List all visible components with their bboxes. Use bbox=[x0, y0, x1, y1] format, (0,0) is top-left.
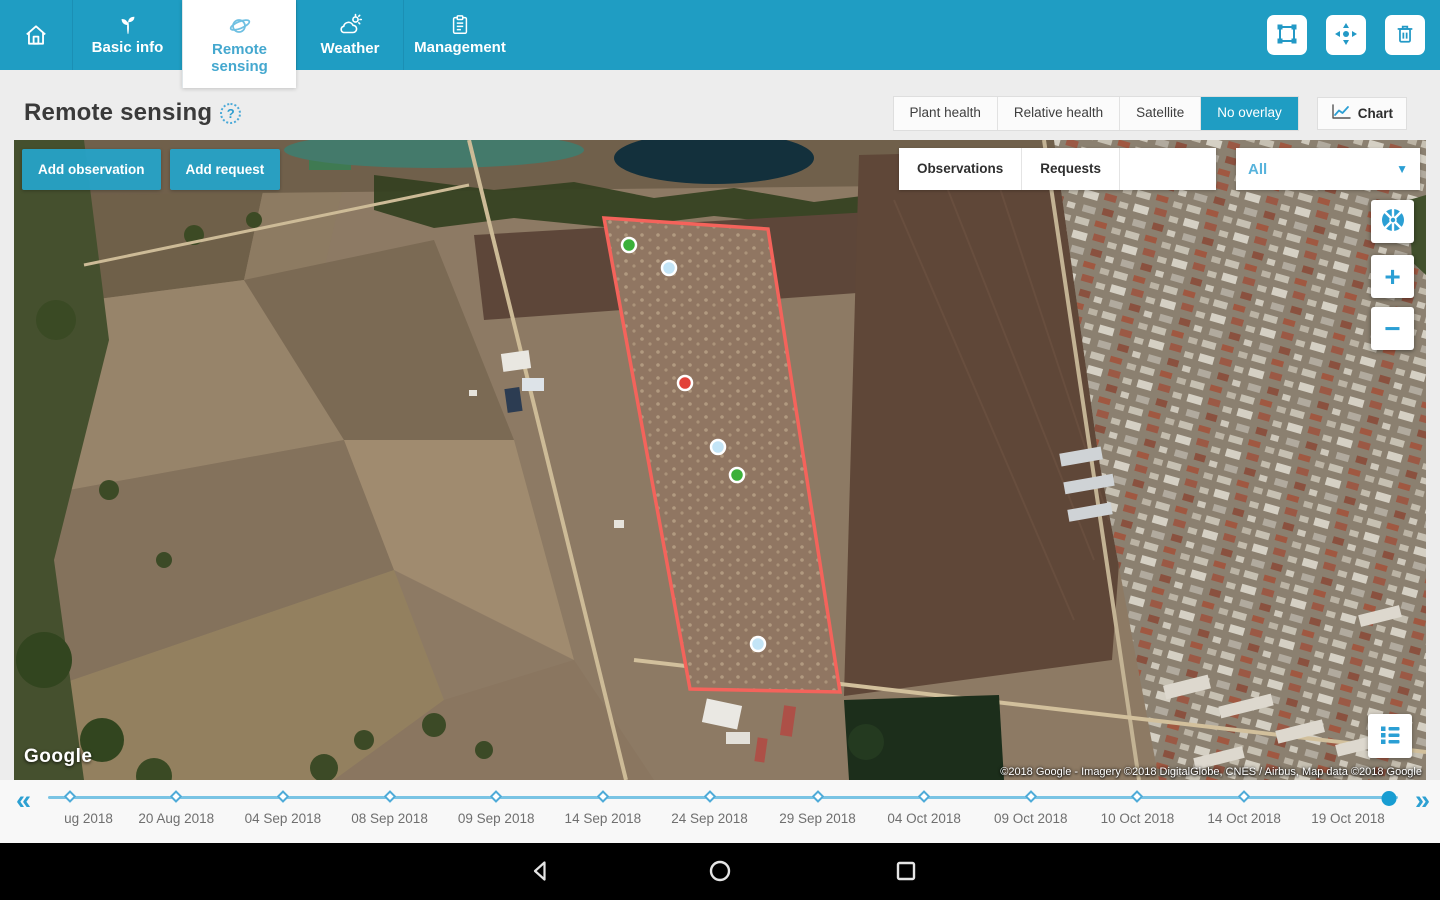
tab-basic-info[interactable]: Basic info bbox=[72, 0, 182, 70]
map-filter-controls: Observations Requests All All ▼ bbox=[899, 148, 1420, 190]
observation-red-marker[interactable] bbox=[678, 376, 692, 390]
satellite-icon bbox=[228, 14, 252, 38]
back-icon[interactable] bbox=[527, 858, 553, 887]
timeline-date-marker[interactable] bbox=[918, 790, 931, 803]
overlay-segment: Plant health Relative health Satellite N… bbox=[893, 96, 1299, 131]
top-navigation-bar: Basic info Remote sensing Weather bbox=[0, 0, 1440, 70]
timeline-date-label: 09 Sep 2018 bbox=[458, 811, 535, 826]
plus-icon: + bbox=[1384, 263, 1400, 291]
weather-cloud-icon bbox=[337, 13, 363, 37]
tab-management[interactable]: Management bbox=[403, 0, 516, 70]
tab-label: Weather bbox=[321, 40, 380, 57]
filter-all[interactable]: All bbox=[1120, 148, 1216, 190]
observation-blue-marker[interactable] bbox=[711, 440, 725, 454]
timeline-date-label: 09 Oct 2018 bbox=[994, 811, 1068, 826]
clipboard-icon bbox=[449, 14, 471, 36]
timeline-date-marker[interactable] bbox=[1238, 790, 1251, 803]
overlay-option-plant-health[interactable]: Plant health bbox=[894, 97, 998, 130]
observation-blue-marker[interactable] bbox=[751, 637, 765, 651]
header-actions bbox=[1267, 0, 1440, 70]
map-action-buttons: Add observation Add request bbox=[22, 149, 280, 190]
tab-remote-sensing[interactable]: Remote sensing bbox=[182, 0, 296, 88]
timeline-date-marker[interactable] bbox=[703, 790, 716, 803]
timeline-date-marker[interactable] bbox=[1131, 790, 1144, 803]
zoom-out-button[interactable]: − bbox=[1371, 307, 1414, 350]
tab-home[interactable] bbox=[0, 0, 72, 70]
tab-weather[interactable]: Weather bbox=[296, 0, 403, 70]
timeline-date-label: 14 Sep 2018 bbox=[565, 811, 642, 826]
locate-field-button[interactable] bbox=[1371, 200, 1414, 243]
trash-icon bbox=[1394, 23, 1416, 48]
help-icon[interactable]: ? bbox=[220, 103, 241, 124]
timeline-slider[interactable]: ug 201820 Aug 201804 Sep 201808 Sep 2018… bbox=[48, 780, 1398, 843]
minus-icon: − bbox=[1384, 315, 1400, 343]
app-window: Basic info Remote sensing Weather bbox=[0, 0, 1440, 900]
chart-button[interactable]: Chart bbox=[1317, 97, 1407, 130]
chart-button-label: Chart bbox=[1358, 106, 1393, 121]
timeline-date-marker[interactable] bbox=[383, 790, 396, 803]
android-navigation-bar bbox=[0, 843, 1440, 900]
edit-boundary-icon bbox=[1275, 22, 1299, 49]
timeline-selected-date-marker[interactable] bbox=[1381, 791, 1396, 806]
recents-square-icon[interactable] bbox=[893, 858, 919, 887]
timeline-date-label: 24 Sep 2018 bbox=[671, 811, 748, 826]
locate-aperture-icon bbox=[1380, 207, 1406, 236]
tab-label: Management bbox=[414, 39, 506, 56]
legend-list-icon bbox=[1378, 723, 1402, 750]
chevron-down-icon: ▼ bbox=[1396, 162, 1408, 176]
timeline-date-marker[interactable] bbox=[811, 790, 824, 803]
home-icon bbox=[23, 22, 49, 48]
line-chart-icon bbox=[1331, 104, 1351, 123]
timeline-date-label: ug 2018 bbox=[64, 811, 113, 826]
overlay-option-no-overlay[interactable]: No overlay bbox=[1201, 97, 1298, 130]
satellite-map[interactable]: Add observation Add request Observations… bbox=[14, 140, 1426, 780]
date-timeline: « ug 201820 Aug 201804 Sep 201808 Sep 20… bbox=[0, 780, 1440, 843]
observation-green-marker[interactable] bbox=[622, 238, 636, 252]
timeline-date-label: 20 Aug 2018 bbox=[138, 811, 214, 826]
map-terrain bbox=[14, 140, 1426, 780]
timeline-date-label: 08 Sep 2018 bbox=[351, 811, 428, 826]
timeline-date-label: 04 Sep 2018 bbox=[245, 811, 322, 826]
home-circle-icon[interactable] bbox=[707, 858, 733, 887]
observation-green-marker[interactable] bbox=[730, 468, 744, 482]
edit-boundary-button[interactable] bbox=[1267, 15, 1307, 55]
delete-field-button[interactable] bbox=[1385, 15, 1425, 55]
marker-filter-segment: Observations Requests All bbox=[899, 148, 1216, 190]
overlay-controls: Plant health Relative health Satellite N… bbox=[893, 96, 1407, 131]
timeline-date-label: 19 Oct 2018 bbox=[1311, 811, 1385, 826]
filter-observations[interactable]: Observations bbox=[899, 148, 1022, 190]
timeline-date-marker[interactable] bbox=[596, 790, 609, 803]
add-request-button[interactable]: Add request bbox=[170, 149, 281, 190]
timeline-next-button[interactable]: » bbox=[1415, 784, 1430, 816]
timeline-date-marker[interactable] bbox=[1024, 790, 1037, 803]
center-target-icon bbox=[1334, 22, 1358, 49]
page-title: Remote sensing bbox=[24, 99, 212, 127]
timeline-date-marker[interactable] bbox=[170, 790, 183, 803]
map-attribution: ©2018 Google - Imagery ©2018 DigitalGlob… bbox=[1000, 766, 1422, 778]
timeline-track bbox=[48, 796, 1398, 799]
google-logo: Google bbox=[24, 746, 92, 768]
overlay-option-relative-health[interactable]: Relative health bbox=[998, 97, 1120, 130]
timeline-prev-button[interactable]: « bbox=[16, 784, 31, 816]
center-field-button[interactable] bbox=[1326, 15, 1366, 55]
tab-label: Basic info bbox=[92, 39, 164, 56]
type-dropdown[interactable]: All ▼ bbox=[1236, 148, 1420, 190]
timeline-date-label: 10 Oct 2018 bbox=[1101, 811, 1175, 826]
sprout-icon bbox=[117, 14, 139, 36]
type-dropdown-value: All bbox=[1248, 161, 1267, 178]
add-observation-button[interactable]: Add observation bbox=[22, 149, 161, 190]
overlay-option-satellite[interactable]: Satellite bbox=[1120, 97, 1201, 130]
filter-requests[interactable]: Requests bbox=[1022, 148, 1120, 190]
timeline-date-label: 04 Oct 2018 bbox=[887, 811, 961, 826]
timeline-date-marker[interactable] bbox=[63, 790, 76, 803]
observation-blue-marker[interactable] bbox=[662, 261, 676, 275]
timeline-date-marker[interactable] bbox=[490, 790, 503, 803]
zoom-in-button[interactable]: + bbox=[1371, 255, 1414, 298]
legend-button[interactable] bbox=[1368, 714, 1412, 758]
timeline-date-marker[interactable] bbox=[277, 790, 290, 803]
tab-label: Remote sensing bbox=[201, 41, 279, 75]
timeline-date-label: 29 Sep 2018 bbox=[779, 811, 856, 826]
timeline-date-label: 14 Oct 2018 bbox=[1207, 811, 1281, 826]
